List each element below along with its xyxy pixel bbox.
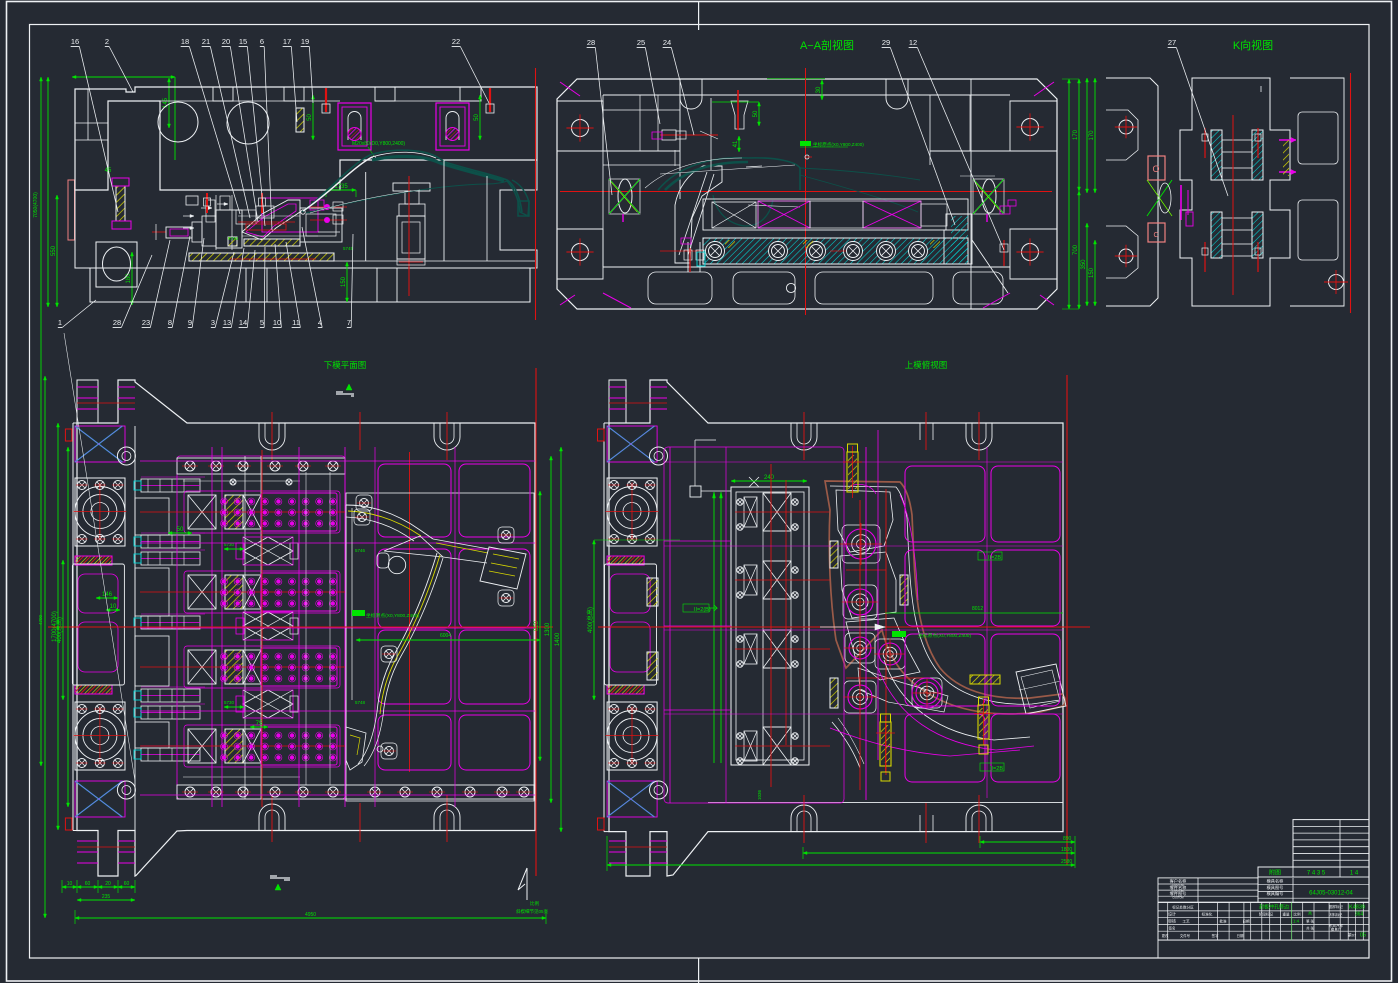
svg-text:设计: 设计 [1168,911,1176,917]
svg-text:64J05-03012-04: 64J05-03012-04 [1309,890,1353,896]
svg-text:400(总高): 400(总高) [586,607,594,633]
svg-text:10: 10 [273,318,281,327]
svg-text:17: 17 [283,37,291,46]
svg-text:29: 29 [882,38,890,47]
svg-text:CUSTOM: CUSTOM [1172,895,1183,899]
svg-text:700: 700 [1073,244,1079,255]
svg-text:1400: 1400 [555,632,561,646]
svg-text:更改: 更改 [1162,933,1169,938]
svg-text:23: 23 [142,318,150,327]
svg-text:75: 75 [256,721,263,727]
svg-text:10: 10 [110,604,117,610]
svg-text:M20x80(D0,Y800,2400): M20x80(D0,Y800,2400) [352,141,405,147]
svg-text:4700: 4700 [38,614,43,625]
svg-text:19: 19 [301,37,309,46]
svg-text:比例: 比例 [1293,912,1301,917]
svg-text:8: 8 [168,318,172,327]
svg-text:1 4: 1 4 [1350,871,1359,877]
svg-text:2: 2 [105,37,109,46]
svg-text:模具图号: 模具图号 [1267,884,1284,891]
svg-text:日期: 日期 [1237,933,1244,938]
svg-text:上模俯视图: 上模俯视图 [905,360,948,370]
svg-text:审核: 审核 [1168,918,1176,924]
svg-text:9: 9 [188,318,192,327]
svg-text:第 张: 第 张 [1306,919,1314,924]
svg-text:附图: 附图 [1269,869,1281,877]
svg-text:比例: 比例 [530,900,539,907]
svg-text:8012: 8012 [972,606,983,612]
svg-text:25: 25 [637,38,645,47]
svg-text:170: 170 [1073,129,1079,140]
svg-text:50: 50 [307,114,313,121]
svg-text:5746: 5746 [228,236,239,241]
svg-text:5748: 5748 [355,700,366,705]
svg-text:斜楔细节见05页: 斜楔细节见05页 [516,908,549,915]
svg-text:坐标原点(X0,Y800,Z400): 坐标原点(X0,Y800,Z400) [918,632,971,639]
svg-text:150: 150 [1089,267,1095,278]
svg-text:1036: 1036 [757,789,762,800]
svg-text:5745: 5745 [343,246,354,251]
svg-text:阶段标记: 阶段标记 [1259,912,1274,917]
svg-text:5730: 5730 [224,700,235,705]
svg-text:2580: 2580 [1061,859,1072,865]
svg-text:7 4 3 5: 7 4 3 5 [1307,871,1326,877]
svg-text:41: 41 [733,140,739,147]
svg-text:工艺: 工艺 [1182,919,1190,924]
svg-text:28: 28 [587,38,595,47]
svg-text:日期: 日期 [1242,919,1250,924]
svg-text:550: 550 [51,245,57,256]
svg-text:60: 60 [124,881,130,887]
svg-text:240: 240 [764,475,775,481]
svg-text:350: 350 [1081,259,1087,270]
svg-text:820: 820 [534,620,540,631]
svg-text:模具厂: 模具厂 [1331,927,1342,932]
svg-text:共 张: 共 张 [1306,926,1314,931]
svg-text:第07: 第07 [1348,932,1357,938]
svg-text:6: 6 [260,37,264,46]
svg-text:封板冲孔修边: 封板冲孔修边 [1259,904,1289,911]
svg-text:27: 27 [1168,38,1176,47]
svg-text:20: 20 [222,37,230,46]
svg-text:坐标原点(X0,Y800,Z400): 坐标原点(X0,Y800,Z400) [366,612,419,619]
svg-text:21: 21 [202,37,210,46]
svg-text:5746: 5746 [355,548,366,553]
svg-text:400(总高): 400(总高) [55,617,63,643]
svg-text:146: 146 [102,592,113,598]
svg-text:50: 50 [474,114,480,121]
svg-text:13: 13 [223,318,231,327]
svg-text:批准: 批准 [1219,919,1227,924]
svg-text:共: 共 [1308,910,1312,916]
svg-text:50: 50 [177,527,184,533]
svg-text:1300: 1300 [545,622,551,636]
svg-text:20: 20 [105,881,111,887]
svg-text:签名: 签名 [1169,926,1176,931]
svg-text:235: 235 [102,894,111,900]
svg-text:12: 12 [909,38,917,47]
svg-text:O: O [1152,164,1159,174]
svg-text:5: 5 [260,318,264,327]
svg-text:A−A剖视图: A−A剖视图 [800,38,854,52]
svg-text:15: 15 [239,37,247,46]
svg-text:下模平面图: 下模平面图 [324,360,367,370]
svg-text:1:4: 1:4 [1293,919,1300,924]
svg-text:签字: 签字 [1212,933,1219,938]
svg-text:1: 1 [58,318,62,327]
svg-text:4950: 4950 [305,912,316,918]
svg-text:05: 05 [1360,933,1366,939]
svg-text:16: 16 [71,37,79,46]
svg-text:890: 890 [1063,836,1072,842]
svg-text:材料标记: 材料标记 [1330,912,1344,917]
svg-text:24: 24 [663,38,671,47]
svg-text:模具名称: 模具名称 [1267,878,1284,885]
svg-text:150: 150 [341,276,347,287]
svg-text:标记处数分区: 标记处数分区 [1172,905,1194,910]
svg-text:180: 180 [126,273,132,284]
svg-text:28: 28 [113,318,121,327]
svg-text:10: 10 [67,881,73,887]
svg-text:标准化: 标准化 [1202,912,1213,917]
svg-text:50: 50 [753,110,759,117]
svg-text:18: 18 [181,37,189,46]
svg-text:重量: 重量 [1282,912,1290,917]
svg-text:3: 3 [211,318,215,327]
svg-text:60: 60 [85,881,91,887]
svg-text:K向视图: K向视图 [1233,38,1273,52]
svg-text:K4839: K4839 [1349,905,1365,911]
svg-text:170: 170 [1089,130,1095,141]
svg-text:22: 22 [452,37,460,46]
svg-text:模具编号: 模具编号 [1267,890,1284,897]
svg-text:7: 7 [347,318,351,327]
svg-text:1800: 1800 [1061,847,1072,853]
svg-text:图样标记: 图样标记 [1329,904,1343,909]
svg-text:30: 30 [816,86,822,93]
svg-text:364: 364 [1355,912,1364,918]
svg-text:7050(4700): 7050(4700) [33,192,39,218]
svg-text:C: C [1153,232,1158,239]
svg-text:14: 14 [239,318,247,327]
svg-text:6004: 6004 [440,633,451,639]
svg-text:文件号: 文件号 [1180,933,1191,938]
